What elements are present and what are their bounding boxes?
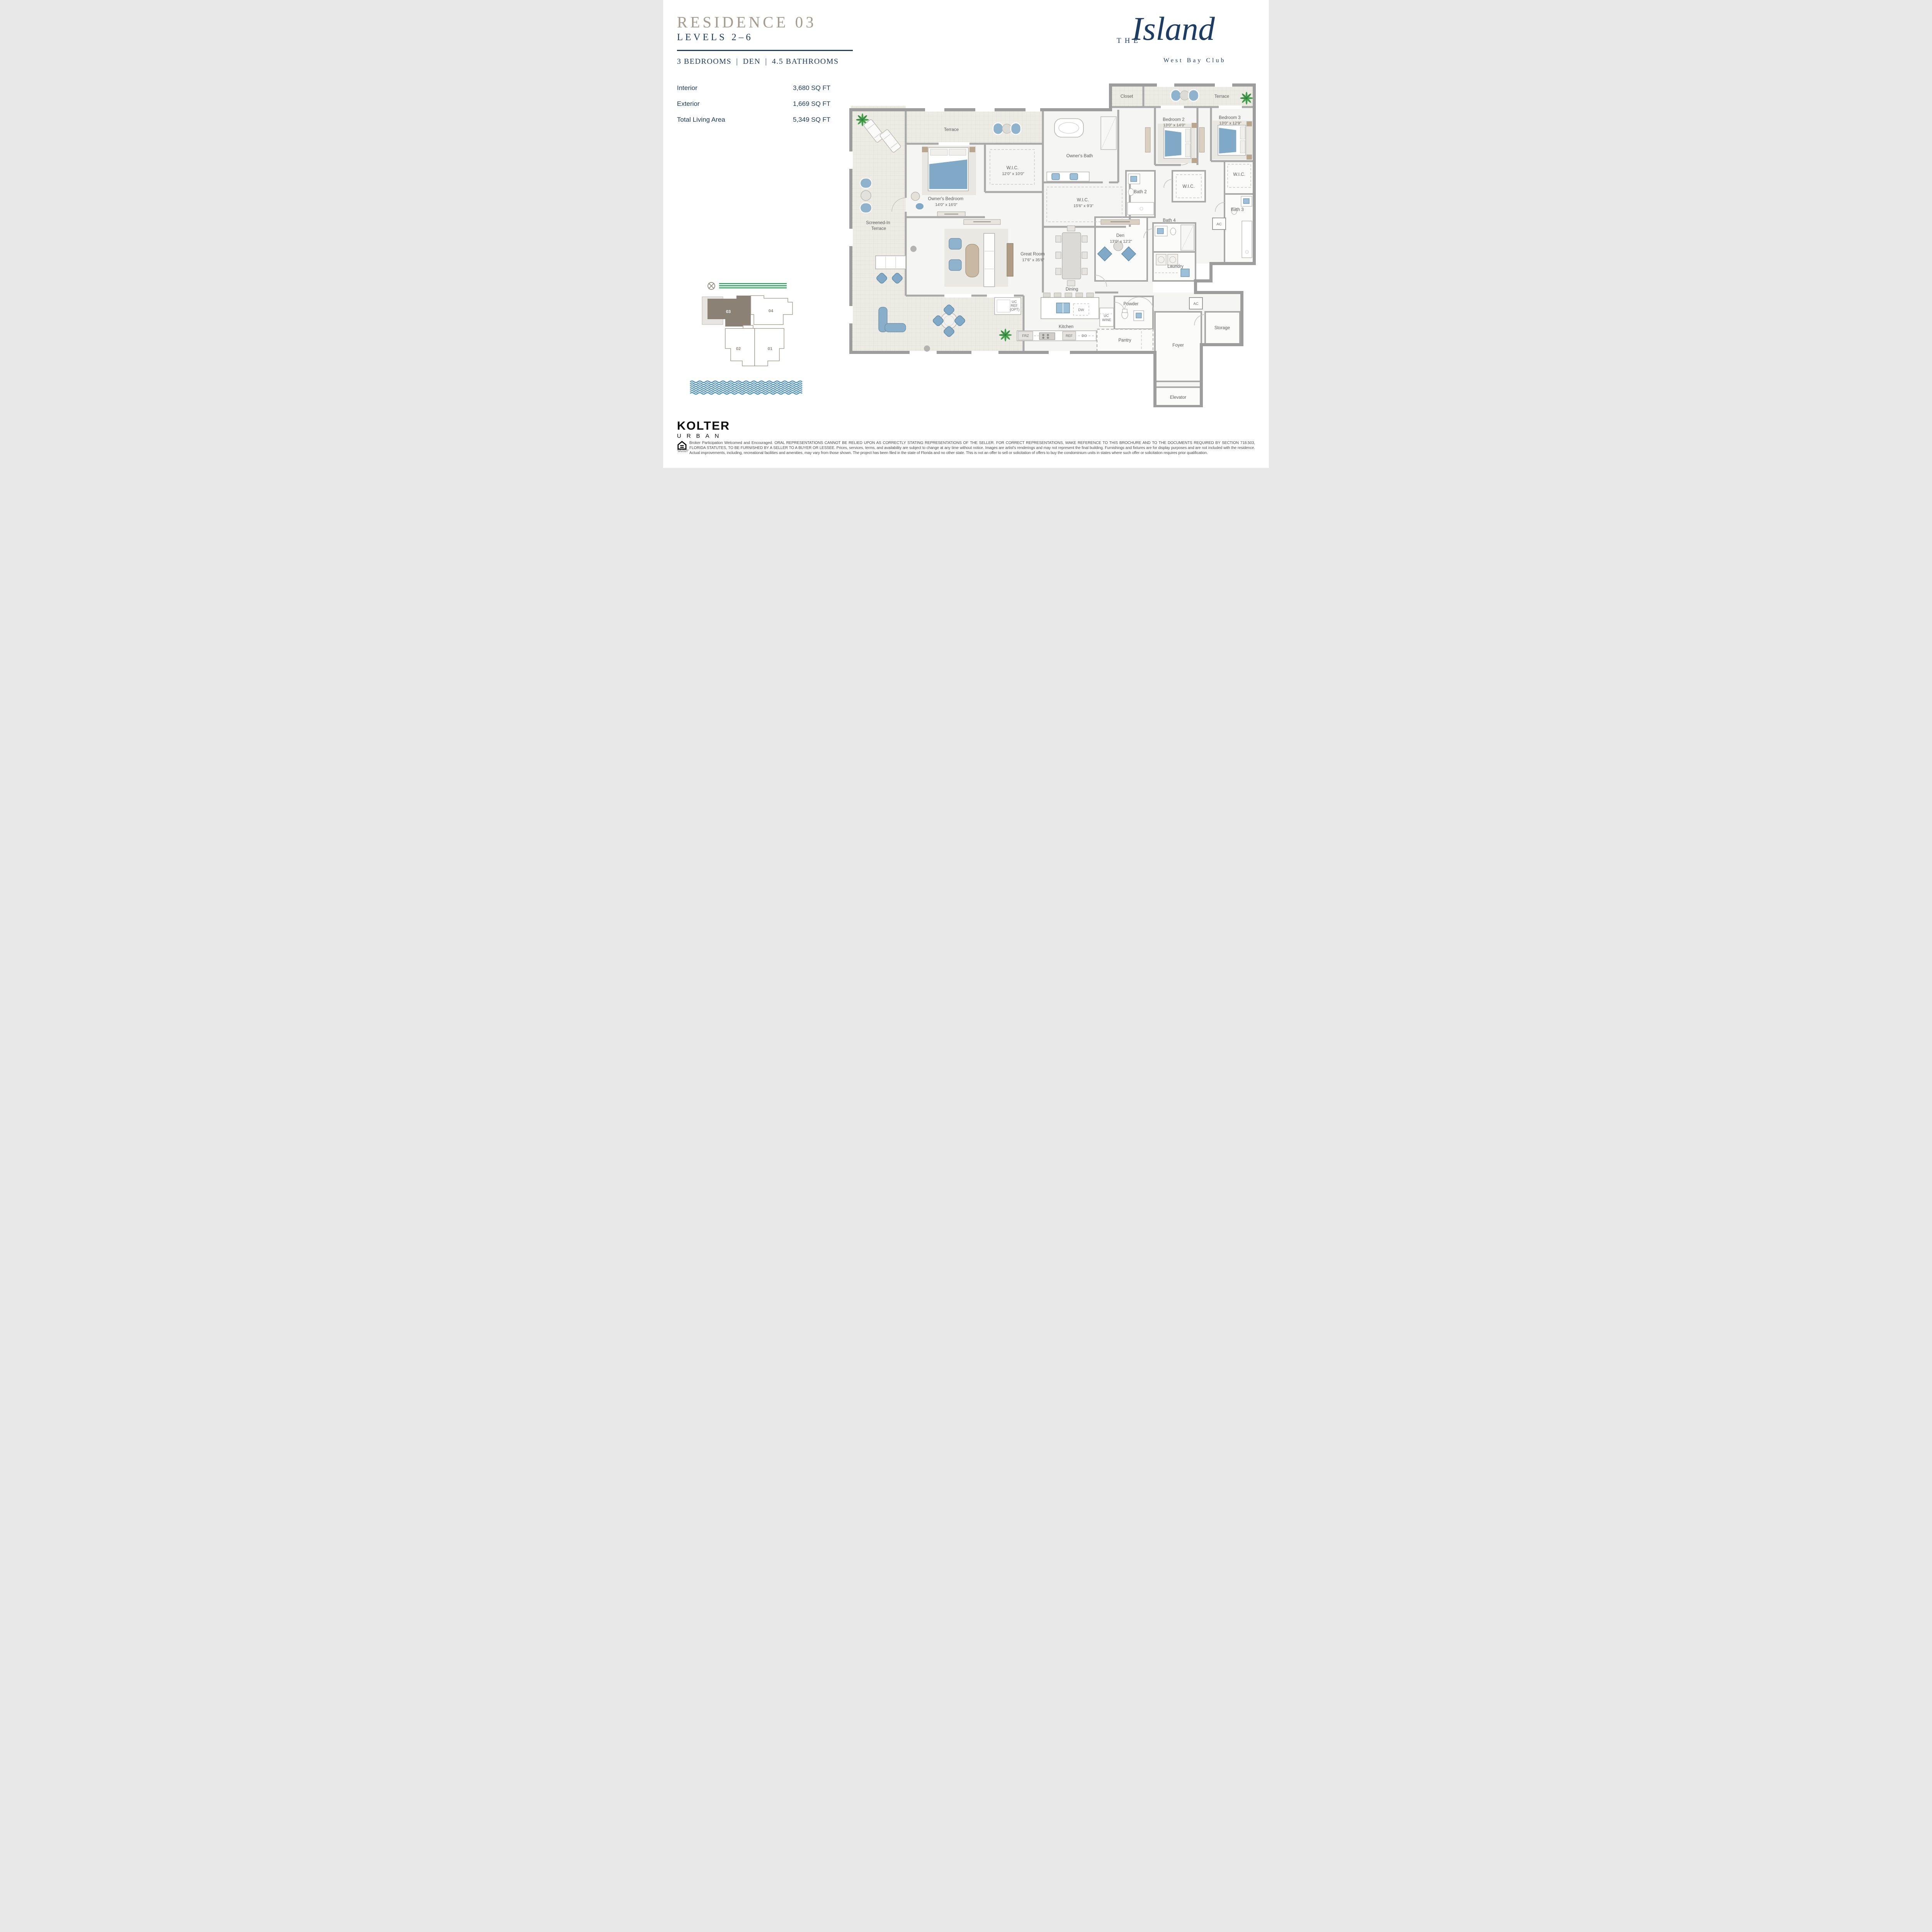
hall-dresser (1199, 128, 1204, 152)
nightstand (1192, 158, 1197, 163)
label-frz: FRZ (1022, 334, 1029, 338)
owners-bed-duvet (929, 159, 968, 189)
room-label-powder: Powder (1124, 302, 1139, 306)
room-label-bath2: Bath 2 (1134, 190, 1146, 194)
room-label-elevator: Elevator (1170, 395, 1186, 400)
bed2-duvet (1165, 130, 1182, 157)
header: RESIDENCE 03 LEVELS 2–6 3 BEDROOMS|DEN|4… (677, 14, 859, 66)
feature-separator: | (731, 57, 743, 66)
unit-label-01: 01 (768, 347, 772, 351)
compass-icon (708, 282, 715, 289)
nightstand (1247, 155, 1252, 160)
hall-dresser (1145, 128, 1150, 152)
terrace-column (910, 246, 917, 252)
area-value: 1,669 SQ FT (793, 100, 830, 108)
laundry-sink (1181, 269, 1189, 277)
dining-table (1062, 233, 1081, 279)
range (1039, 333, 1055, 340)
bedroom-ottoman (915, 203, 924, 210)
bath2-toilet (1128, 189, 1134, 196)
room-label-pantry: Pantry (1118, 338, 1131, 343)
feature-separator: | (760, 57, 772, 66)
area-value: 3,680 SQ FT (793, 84, 830, 92)
feature-summary: 3 BEDROOMS|DEN|4.5 BATHROOMS (677, 57, 859, 66)
area-table: Interior 3,680 SQ FT Exterior 1,669 SQ F… (677, 84, 832, 132)
feature-den: DEN (743, 57, 761, 66)
room-label-wic-bed2: W.I.C. (1182, 184, 1194, 189)
terrace-main-grid (906, 110, 1043, 144)
equal-housing-text2: OPPORTUNITY (677, 451, 689, 453)
unit-label-02: 02 (736, 347, 741, 351)
label-dw: DW (1078, 308, 1084, 312)
kolter-logo: KOLTER URBAN (677, 420, 730, 439)
area-row: Interior 3,680 SQ FT (677, 84, 832, 92)
equal-housing-icon (677, 440, 687, 450)
room-label-foyer: Foyer (1172, 343, 1184, 348)
nightstand (922, 147, 928, 152)
brochure-page: RESIDENCE 03 LEVELS 2–6 3 BEDROOMS|DEN|4… (663, 0, 1269, 468)
bed3-duvet (1219, 128, 1236, 154)
levels-subtitle: LEVELS 2–6 (677, 32, 859, 43)
nightstand (969, 147, 975, 152)
palm-icon (1240, 92, 1253, 105)
label-do: DO (1082, 334, 1087, 338)
bath3-tub (1242, 221, 1252, 258)
equal-housing-logo: EQUAL HOUSING OPPORTUNITY (677, 440, 689, 453)
room-label-laundry: Laundry (1167, 264, 1184, 269)
nightstand (1192, 123, 1197, 128)
label-ref: REF (1066, 334, 1073, 338)
sink (1052, 173, 1060, 180)
water-waves (690, 381, 802, 394)
area-label: Exterior (677, 100, 793, 108)
feature-bedrooms: 3 BEDROOMS (677, 57, 731, 66)
sofa (984, 233, 995, 287)
header-divider (677, 50, 853, 51)
area-row: Exterior 1,669 SQ FT (677, 100, 832, 108)
room-label-closet: Closet (1121, 94, 1133, 99)
coffee-table (966, 244, 979, 277)
terrace-table (861, 190, 871, 201)
room-label-storage: Storage (1214, 326, 1230, 330)
floor-plan: Terrace Screened-In Terrace Owner's Bedr… (848, 82, 1258, 407)
palm-icon (999, 329, 1012, 342)
area-label: Total Living Area (677, 116, 793, 124)
room-label-terrace-2: Terrace (1214, 94, 1229, 99)
disclaimer: Broker Participation Welcomed and Encour… (689, 440, 1255, 456)
road-lines (719, 284, 787, 288)
area-value: 5,349 SQ FT (793, 116, 830, 124)
room-label-bath4: Bath 4 (1163, 218, 1176, 223)
armchair (949, 260, 961, 270)
room-label-wic-bed3: W.I.C. (1233, 172, 1245, 177)
room-label-terrace: Terrace (944, 128, 959, 132)
unit-label-03: 03 (726, 310, 731, 314)
room-label-ac2: AC (1193, 302, 1198, 306)
kitchen-island (1041, 298, 1099, 319)
brand-logo: Island (1132, 9, 1215, 48)
tv-console (1007, 243, 1013, 276)
terrace-column (924, 345, 930, 352)
sink (1070, 173, 1078, 180)
terrace-grill (993, 123, 1021, 134)
terrace-chair (860, 203, 872, 213)
kolter-logo-line1: KOLTER (677, 420, 730, 432)
room-label-dining: Dining (1066, 287, 1078, 292)
armchair (949, 238, 961, 249)
bath4-toilet (1170, 228, 1176, 235)
bedroom-chair (911, 192, 920, 201)
terrace-grill (1171, 90, 1199, 101)
feature-bathrooms: 4.5 BATHROOMS (772, 57, 839, 66)
bath2-tub (1128, 202, 1154, 215)
room-wic-bed3 (1225, 161, 1254, 194)
keyplan: 03 04 02 01 (688, 279, 820, 403)
room-label-owners-bath: Owner's Bath (1066, 154, 1093, 158)
room-label-ac1: AC (1216, 222, 1221, 226)
brand-subtitle: West Bay Club (1163, 57, 1226, 64)
nightstand (1247, 121, 1252, 126)
room-label-bath3: Bath 3 (1231, 207, 1243, 212)
page-title: RESIDENCE 03 (677, 14, 859, 31)
kolter-logo-line2: URBAN (677, 433, 730, 439)
unit-label-04: 04 (769, 309, 774, 313)
terrace-sofa (876, 256, 906, 269)
room-label-kitchen: Kitchen (1059, 325, 1073, 329)
area-row: Total Living Area 5,349 SQ FT (677, 116, 832, 124)
terrace-chair (860, 178, 872, 188)
area-label: Interior (677, 84, 793, 92)
